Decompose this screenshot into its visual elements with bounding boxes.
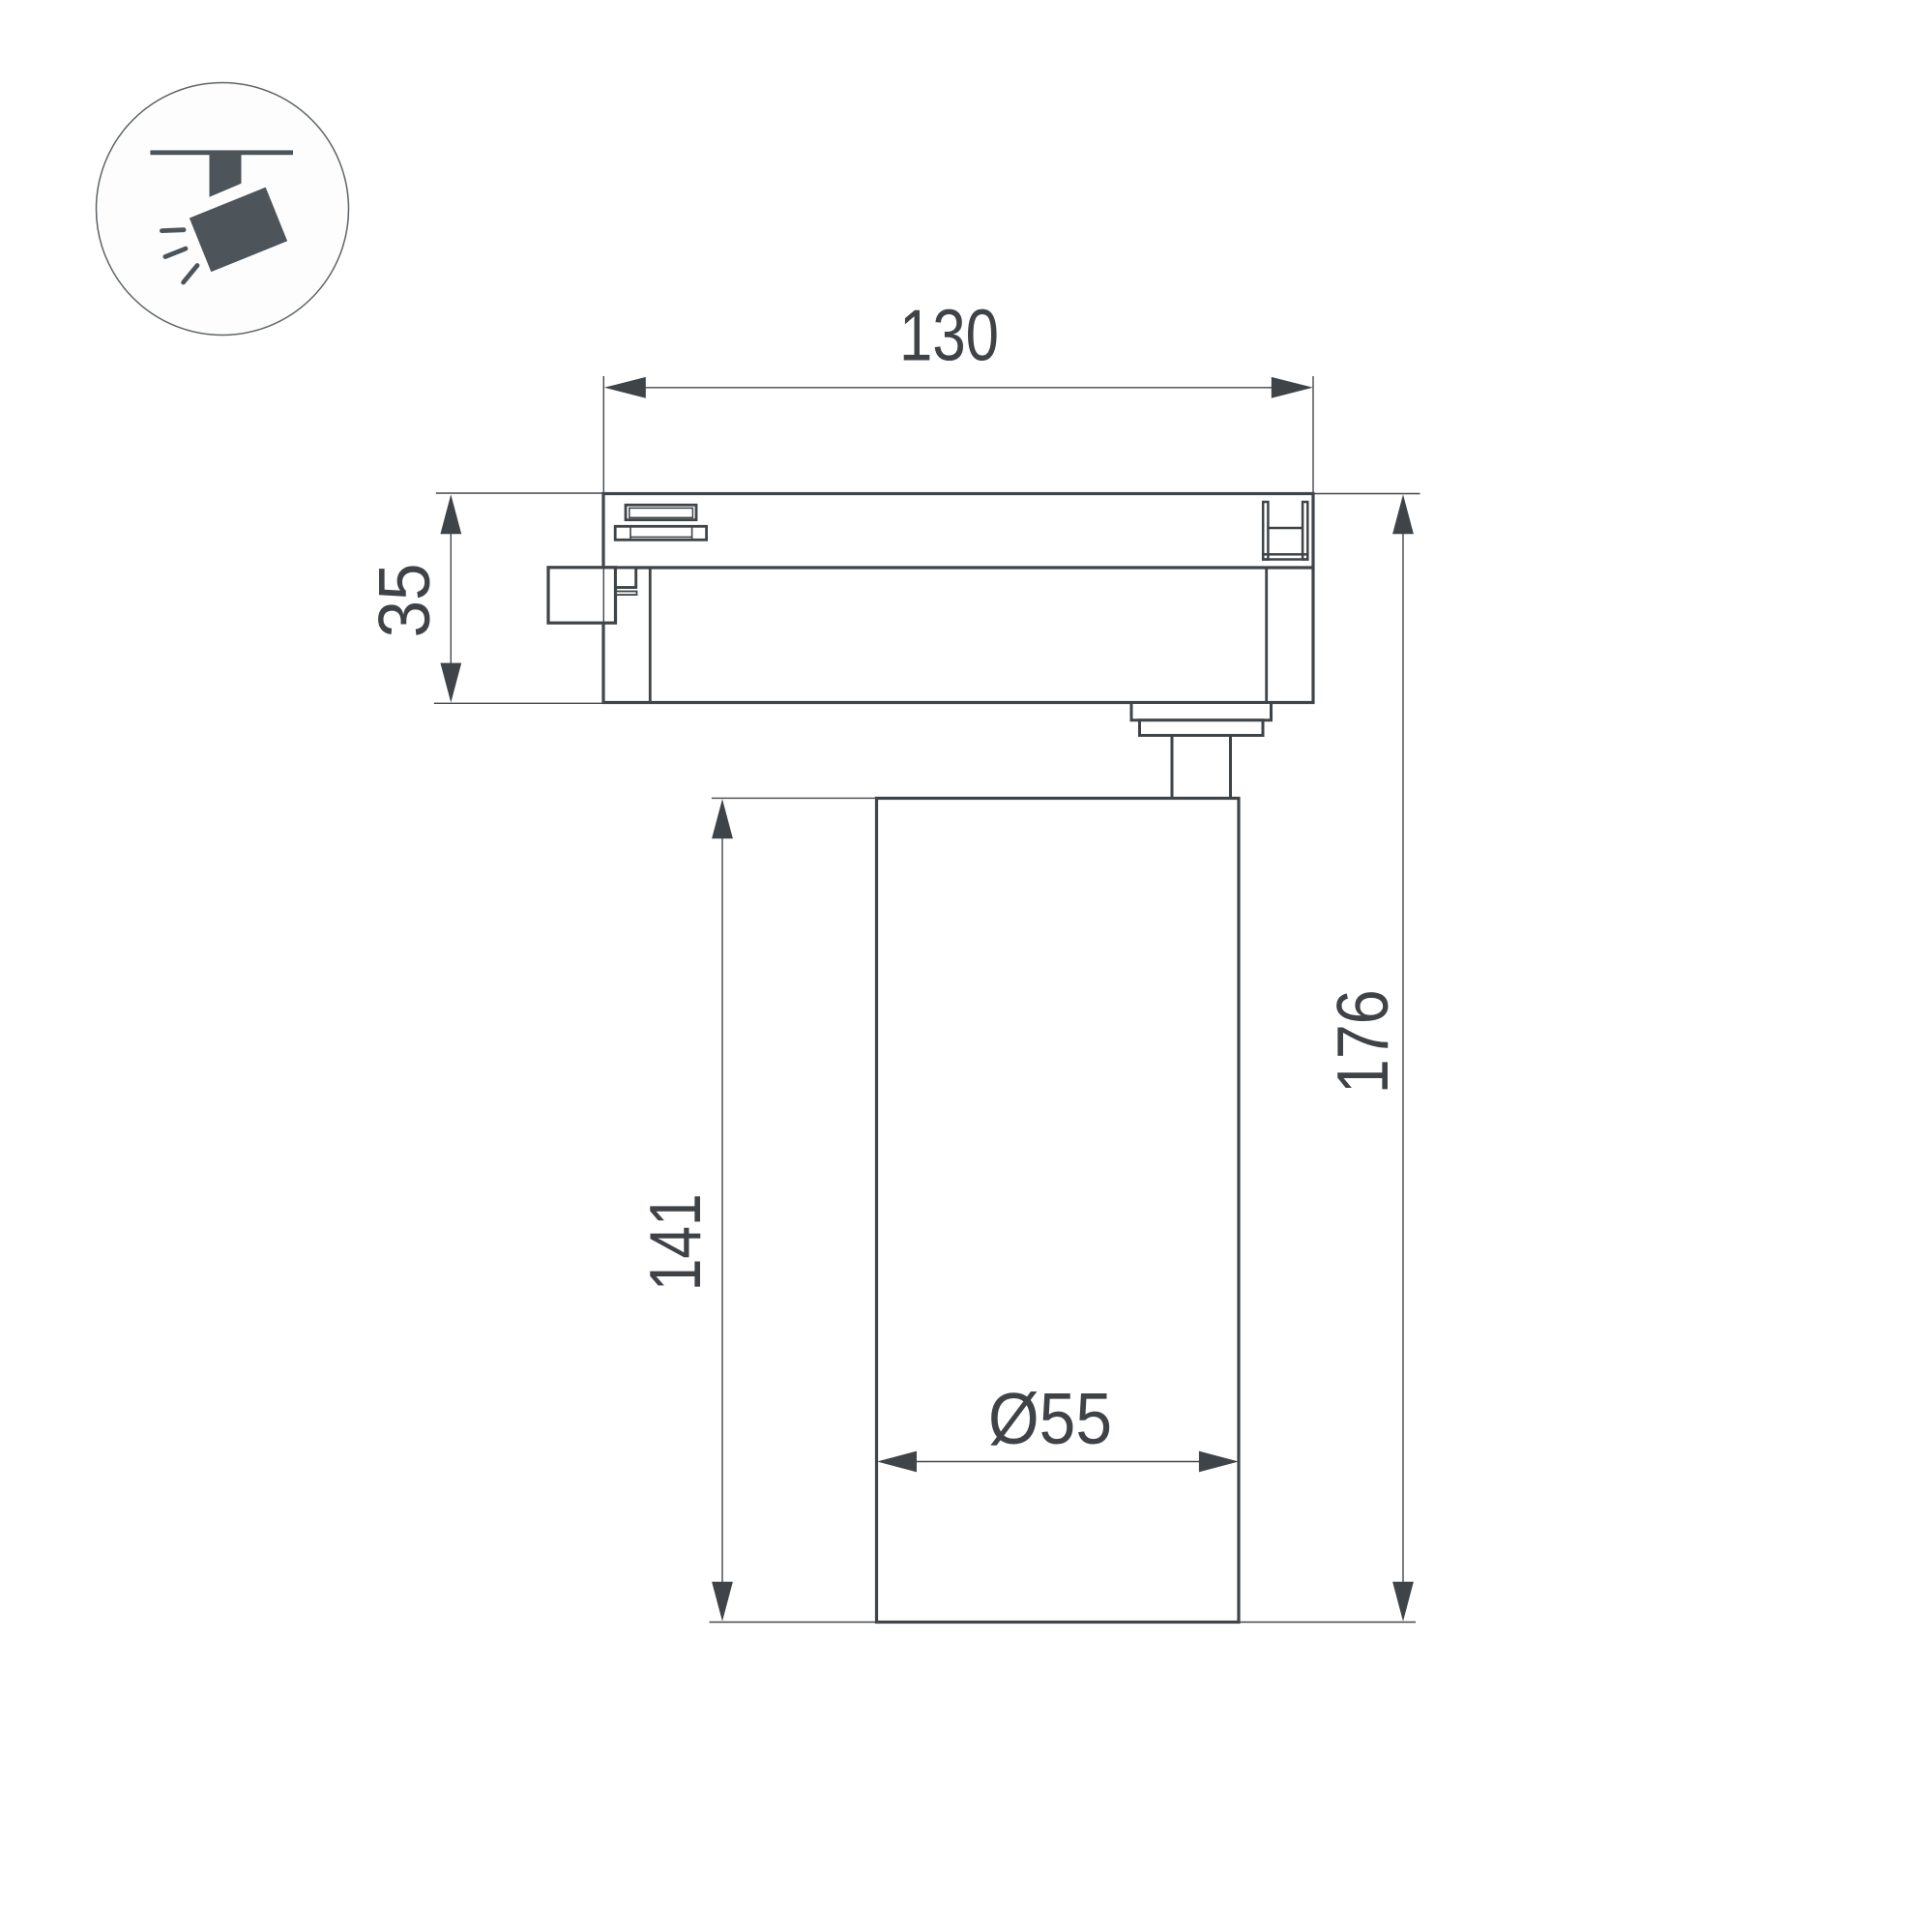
svg-text:130: 130 bbox=[899, 295, 999, 376]
svg-text:35: 35 bbox=[364, 564, 445, 638]
svg-text:141: 141 bbox=[634, 1193, 716, 1291]
svg-text:Ø55: Ø55 bbox=[988, 1378, 1112, 1459]
svg-text:176: 176 bbox=[1322, 989, 1403, 1094]
